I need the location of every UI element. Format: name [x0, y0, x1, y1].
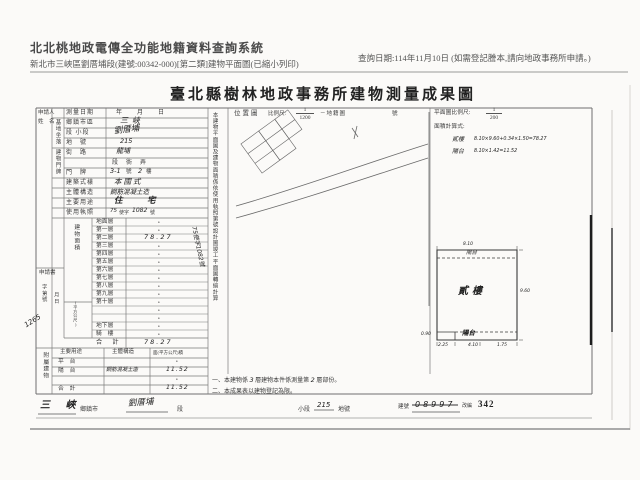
attached-total-label: 合 計	[58, 387, 75, 393]
floor-row-value: •	[158, 301, 160, 306]
plan-dim-bottom-3: 1.75	[497, 344, 507, 349]
note1-suffix: 層部份。	[316, 378, 340, 384]
attached-group-label: 附屬建物	[41, 352, 47, 390]
document-subtitle: 新北市三峽區劉厝埔段(建號:00342-000)[第二類]建物平面圖(已縮小列印…	[30, 60, 299, 69]
attached-header-area: 面(平方公尺)積	[153, 351, 183, 356]
note1-level-hand: 2	[311, 376, 315, 384]
plan-scale-fraction: 1 200	[486, 107, 502, 121]
vertical-note: 本建物平面圖及建物面積係依使用執照第號設計圖竣工平面圖轉繪計算	[211, 112, 217, 370]
floor-row-value: •	[158, 221, 160, 226]
floor-row-label: 第六層	[96, 268, 113, 274]
building-number-stamp: 改編	[462, 404, 472, 409]
floor-row-label: 第一層	[96, 228, 113, 234]
subsection-label: 小段	[298, 407, 310, 413]
floor-row-value: •	[158, 325, 160, 330]
plan-balcony-bottom-label: 陽台	[462, 330, 475, 337]
township-hand: 三 峽	[40, 401, 81, 411]
application-col1: 字第號	[41, 284, 46, 328]
site-group-label: 基地坐落	[54, 119, 60, 147]
structure-value: 鋼筋混凝土造	[110, 189, 149, 196]
section-label: 段	[177, 407, 183, 413]
door-unit2: 樓	[146, 170, 152, 176]
license-number-hand: 1082	[132, 208, 147, 214]
site-township-label: 鄉鎮市區	[66, 120, 94, 126]
door-unit1: 號	[126, 170, 132, 176]
usage-value: 住 宅	[114, 197, 164, 206]
floor-row-value: •	[158, 309, 160, 314]
calc-row1-formula: 8.10×9.60+0.34×1.50=78.27	[474, 138, 547, 143]
application-label: 申請書	[39, 271, 56, 277]
floor-row-label: 騎 樓	[96, 332, 113, 338]
attached-row-blank-area: •	[176, 378, 178, 383]
map-ref-unit: 號	[392, 112, 398, 118]
parcel-label: 地號	[338, 407, 350, 413]
plan-scale-denominator: 200	[486, 113, 502, 121]
floor-row-label: 第四層	[96, 252, 113, 258]
calc-row2-formula: 8.10×1.42=11.52	[474, 150, 517, 155]
door-number-hand: 3-1	[110, 168, 121, 175]
floor-row-value: •	[158, 245, 160, 250]
attached-row-terrace: 平 台	[58, 360, 75, 366]
attached-header-structure: 主體構造	[112, 350, 134, 356]
note1-floors-hand: 3	[250, 376, 254, 384]
floor-row-value: •	[158, 277, 160, 282]
plan-dim-bottom-2: 4.10	[468, 344, 478, 349]
address-group-label: 建物門牌	[54, 149, 60, 177]
lane-print: 段 衖 弄	[112, 160, 147, 166]
floor-total-value: 78.27	[144, 339, 173, 346]
floor-row-label: 地面層	[96, 220, 113, 226]
calc-row1-name: 貳樓	[452, 137, 464, 143]
floor-row-value: •	[158, 285, 160, 290]
street-value: 龍埔	[116, 148, 130, 155]
note-1: 一、本建物係 3 層建物本件係測量第 2 層部份。	[212, 377, 340, 384]
floor-row-label: 第九層	[96, 292, 113, 298]
map-scale-label: 比例尺:	[268, 112, 286, 118]
building-number-new: 342	[478, 400, 495, 409]
township-label: 鄉鎮市	[80, 407, 98, 413]
applicant-label-line1: 申請人	[38, 111, 55, 117]
license-print1: 使字	[119, 211, 129, 216]
floor-row-value: •	[158, 253, 160, 258]
building-style-label: 建築式樣	[66, 180, 94, 186]
license-label: 使用執照	[66, 210, 94, 216]
floor-area-unit: (平方公尺)	[73, 300, 77, 336]
document-title: 臺北縣樹林地政事務所建物測量成果圖	[170, 88, 476, 103]
site-section-label: 段 小段	[66, 130, 90, 136]
section-hand: 劉厝埔	[128, 398, 154, 408]
plan-room-label: 貳樓	[458, 287, 486, 297]
note1-pre: 一、本建物係	[212, 378, 248, 384]
attached-total-area: 11.52	[166, 385, 189, 391]
floor-row-label: 第三層	[96, 244, 113, 250]
calc-label: 面積計算式:	[434, 125, 465, 131]
query-date: 查詢日期:114年11月10日 (如需登記謄本,請向地政事務所申請。)	[358, 54, 591, 63]
note1-mid: 層建物本件係測量第	[255, 378, 309, 384]
floor-row-value: •	[158, 317, 160, 322]
floor-row-label: 第八層	[96, 284, 113, 290]
floor-row-label: 地下層	[96, 324, 113, 330]
license-year-hand: 75	[110, 209, 117, 215]
floor-row-label: 第二層	[96, 236, 113, 242]
building-number-label: 建號	[398, 405, 409, 411]
floor-row-label: 第五層	[96, 260, 113, 266]
floor-row-label: 第七層	[96, 276, 113, 282]
floor2-area-value: 78.27	[144, 234, 173, 241]
plan-dim-bottom-1: 2.25	[438, 344, 448, 349]
survey-date-label: 測量日期	[66, 110, 94, 116]
building-style-value: 本國式	[114, 178, 143, 186]
floor-row-label: 第十層	[96, 300, 113, 306]
map-scale-denominator: 1200	[296, 113, 314, 121]
street-label: 街 路	[66, 150, 87, 156]
applicant-label-line2: 姓 名	[38, 120, 55, 126]
door-floor-hand: 2	[138, 168, 142, 175]
document-viewer-page: 北北桃地政電傳全功能地籍資料查詢系統 新北市三峽區劉厝埔段(建號:00342-0…	[0, 0, 640, 480]
system-title: 北北桃地政電傳全功能地籍資料查詢系統	[30, 42, 264, 54]
attached-balcony-structure: 鋼筋混凝土造	[106, 368, 138, 373]
note-2: 二、本成果表以建物登記為限。	[212, 389, 296, 395]
door-label: 門 牌	[66, 170, 87, 176]
application-col2: 月日	[53, 292, 58, 322]
site-parcel-value: 215	[120, 138, 132, 145]
building-number-old: 08997	[415, 401, 455, 409]
floor-total-label: 合 計	[96, 340, 121, 346]
map-title: 位置圖	[234, 111, 260, 118]
site-parcel-label: 地 號	[66, 140, 87, 146]
usage-label: 主要用途	[66, 200, 94, 206]
floor-row-value: •	[158, 261, 160, 266]
floor-area-group-label: 建物面積	[72, 224, 78, 296]
map-ref-label: －地籍圖	[320, 112, 346, 118]
plan-dim-right: 9.60	[520, 290, 530, 295]
parcel-hand: 215	[317, 402, 330, 409]
plan-balcony-top-label: 陽台	[466, 251, 477, 257]
structure-label: 主體構造	[66, 190, 94, 196]
plan-scale-label: 平面圖比例尺:	[434, 111, 470, 117]
plan-dim-top: 8.10	[463, 243, 473, 248]
attached-row-terrace-area: •	[176, 360, 178, 365]
attached-balcony-area: 11.52	[166, 367, 189, 373]
plan-dim-left: 0.90	[421, 333, 431, 338]
attached-row-balcony: 陽 台	[58, 369, 75, 375]
calc-row2-name: 陽台	[452, 149, 464, 155]
floor-row-value: •	[158, 293, 160, 298]
attached-header-usage: 主要用途	[60, 350, 82, 356]
floor-row-value: •	[158, 269, 160, 274]
map-scale-fraction: 1 1200	[296, 107, 314, 121]
license-print2: 號	[150, 211, 155, 216]
